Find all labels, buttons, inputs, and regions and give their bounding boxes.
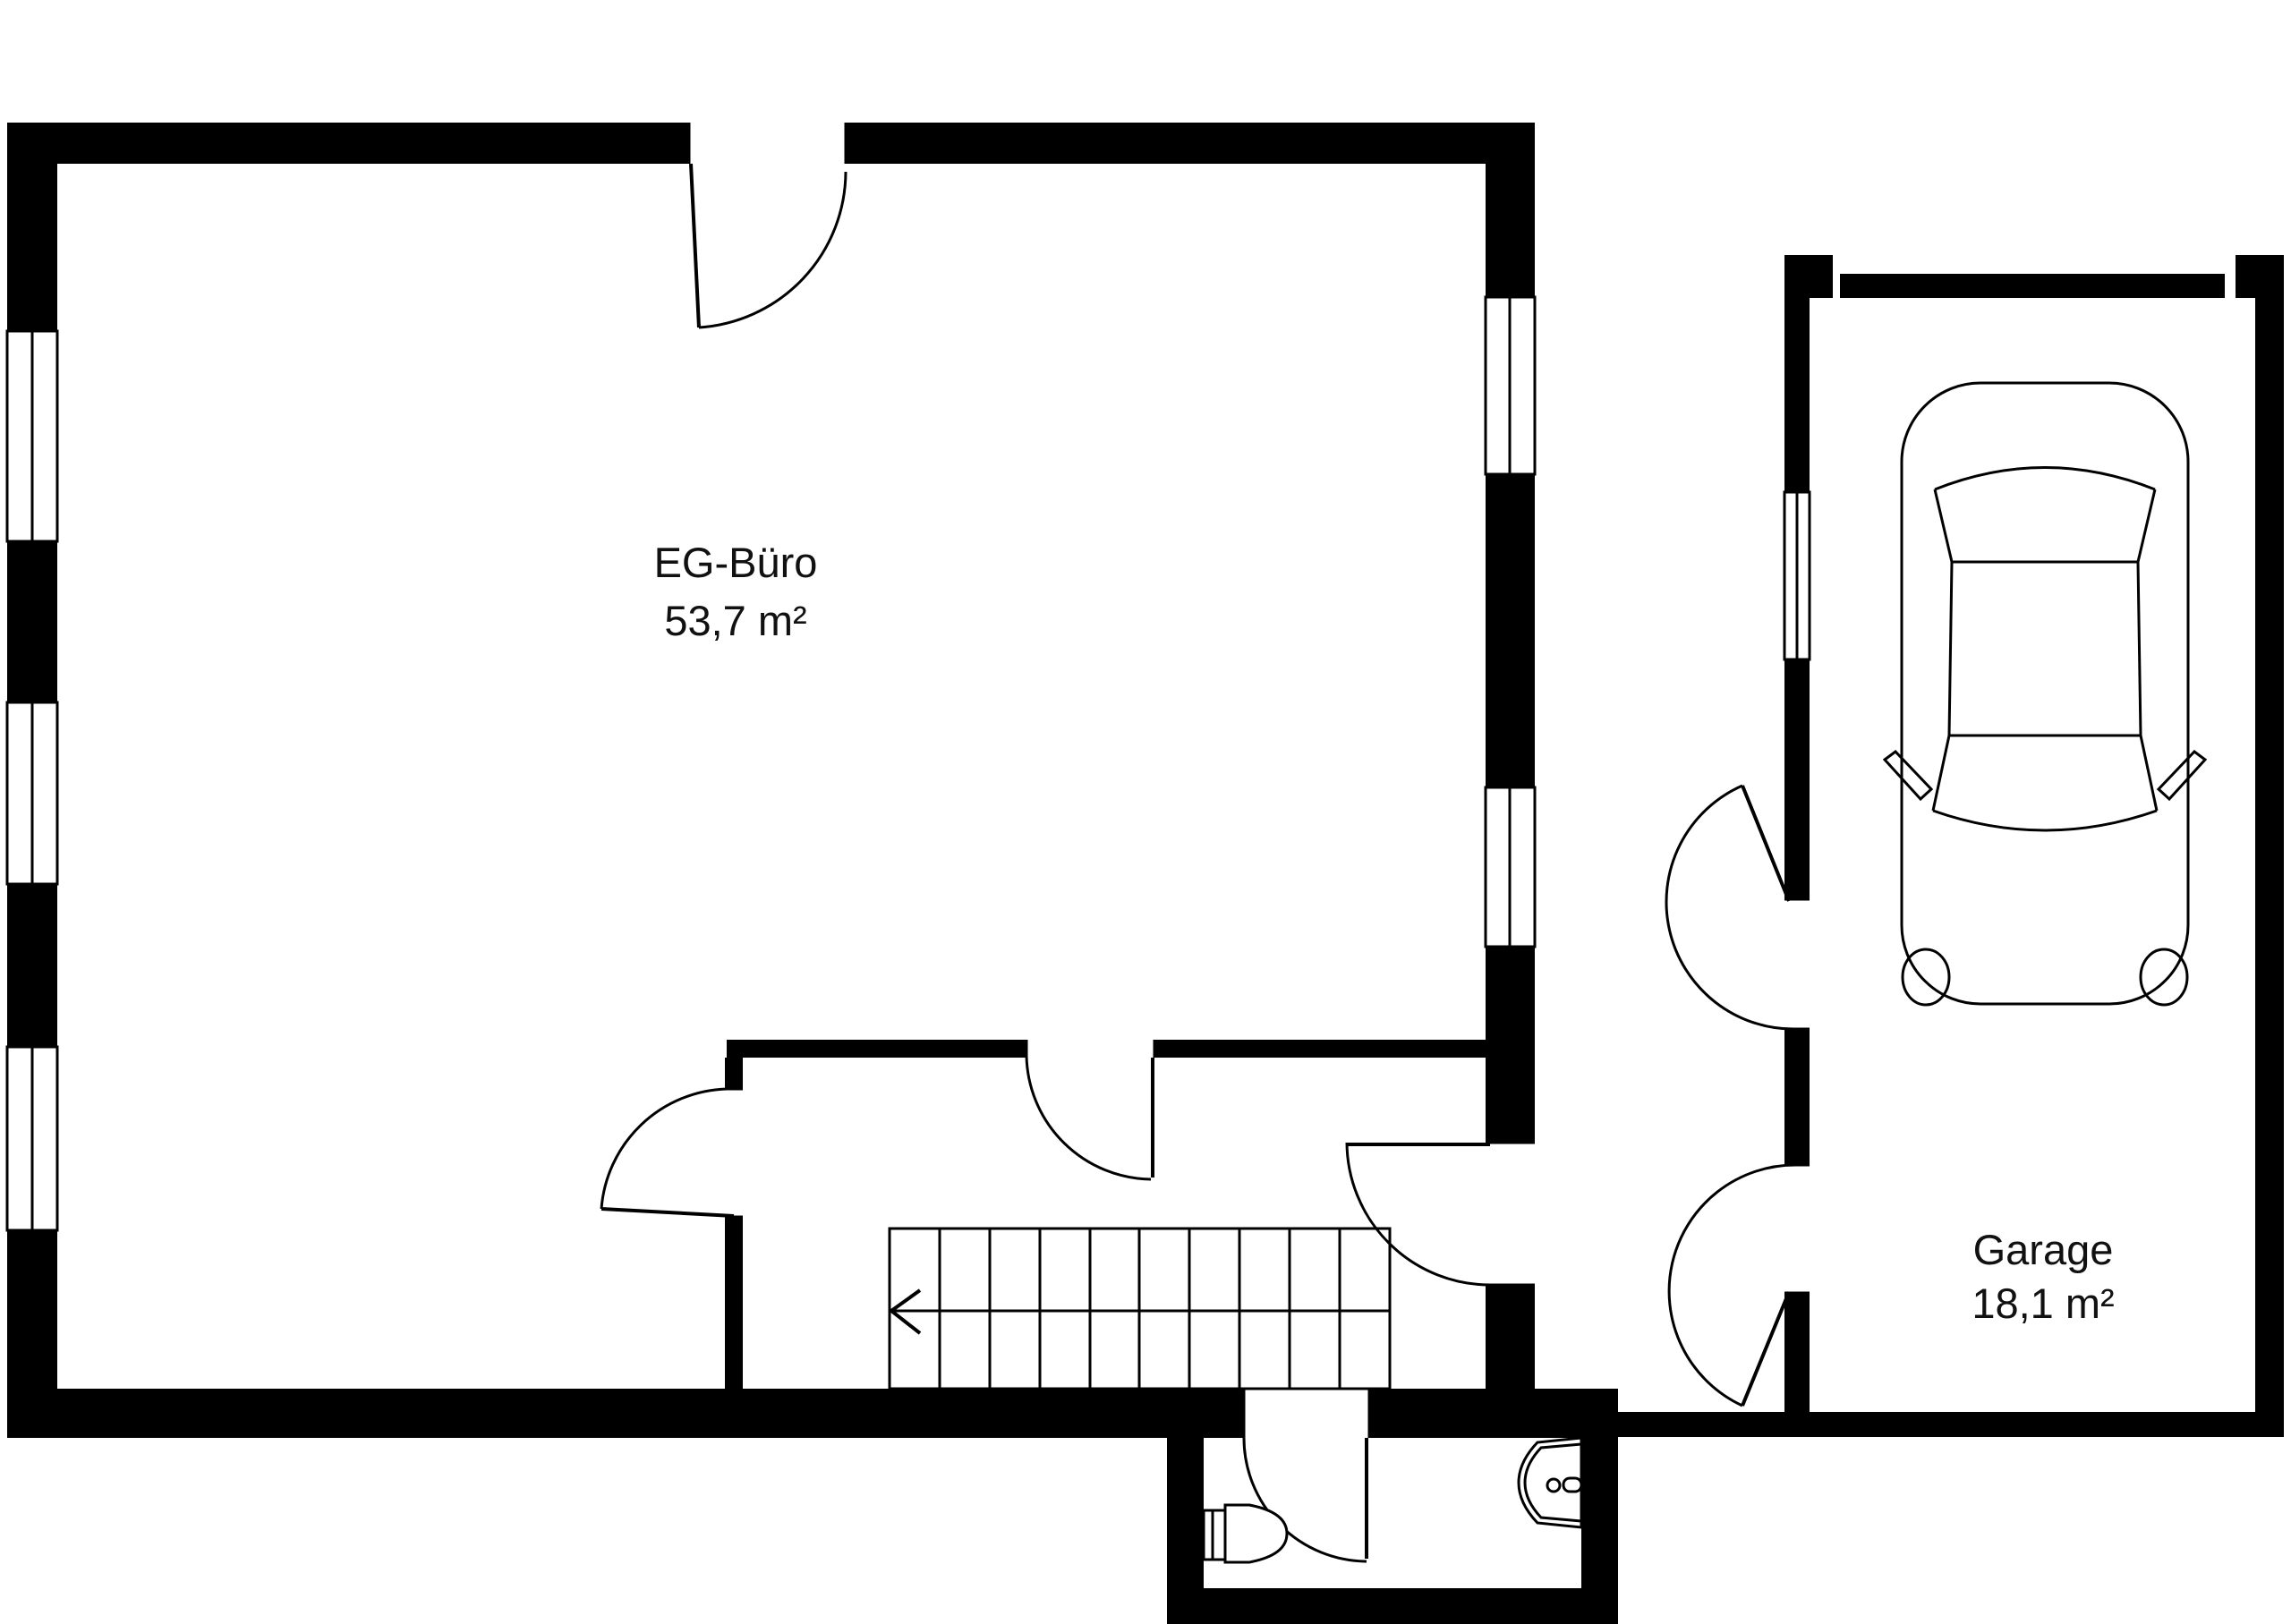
doors bbox=[601, 123, 1810, 1561]
windows bbox=[7, 297, 1810, 1230]
garage-door-icon bbox=[1840, 274, 2225, 298]
window-icon bbox=[1486, 297, 1535, 474]
room-area-eg-buero: 53,7 m² bbox=[664, 597, 806, 644]
room-label-garage: Garage bbox=[1973, 1226, 2114, 1273]
room-label-eg-buero: EG-Büro bbox=[654, 539, 818, 586]
window-icon bbox=[7, 1047, 57, 1230]
window-icon bbox=[1486, 787, 1535, 947]
window-icon bbox=[7, 702, 57, 884]
door-swing-icon bbox=[601, 1089, 743, 1217]
interior-walls bbox=[725, 1040, 1486, 1389]
floor-plan-drawing: EG-Büro 53,7 m² Garage 18,1 m² bbox=[0, 0, 2291, 1624]
room-labels: EG-Büro 53,7 m² Garage 18,1 m² bbox=[654, 539, 2115, 1327]
car-mirror-icon bbox=[1885, 752, 1931, 799]
floor-plan-page: EG-Büro 53,7 m² Garage 18,1 m² bbox=[0, 0, 2291, 1624]
room-area-garage: 18,1 m² bbox=[1972, 1280, 2114, 1327]
window-icon bbox=[7, 331, 57, 541]
door-swing-icon bbox=[689, 123, 846, 327]
toilet-icon bbox=[1204, 1505, 1287, 1562]
car-wheel-icon bbox=[1903, 949, 1949, 1005]
car-wheel-icon bbox=[2141, 949, 2187, 1005]
car-mirror-icon bbox=[2159, 752, 2205, 799]
garage-walls bbox=[1618, 255, 2284, 1437]
door-swing-icon bbox=[1347, 1143, 1535, 1285]
car-icon bbox=[1885, 383, 2205, 1005]
door-swing-icon bbox=[1026, 1040, 1154, 1179]
house-exterior-walls bbox=[7, 123, 1618, 1438]
staircase-icon bbox=[890, 1229, 1390, 1389]
washbasin-icon bbox=[1519, 1438, 1581, 1527]
window-icon bbox=[1784, 492, 1810, 659]
